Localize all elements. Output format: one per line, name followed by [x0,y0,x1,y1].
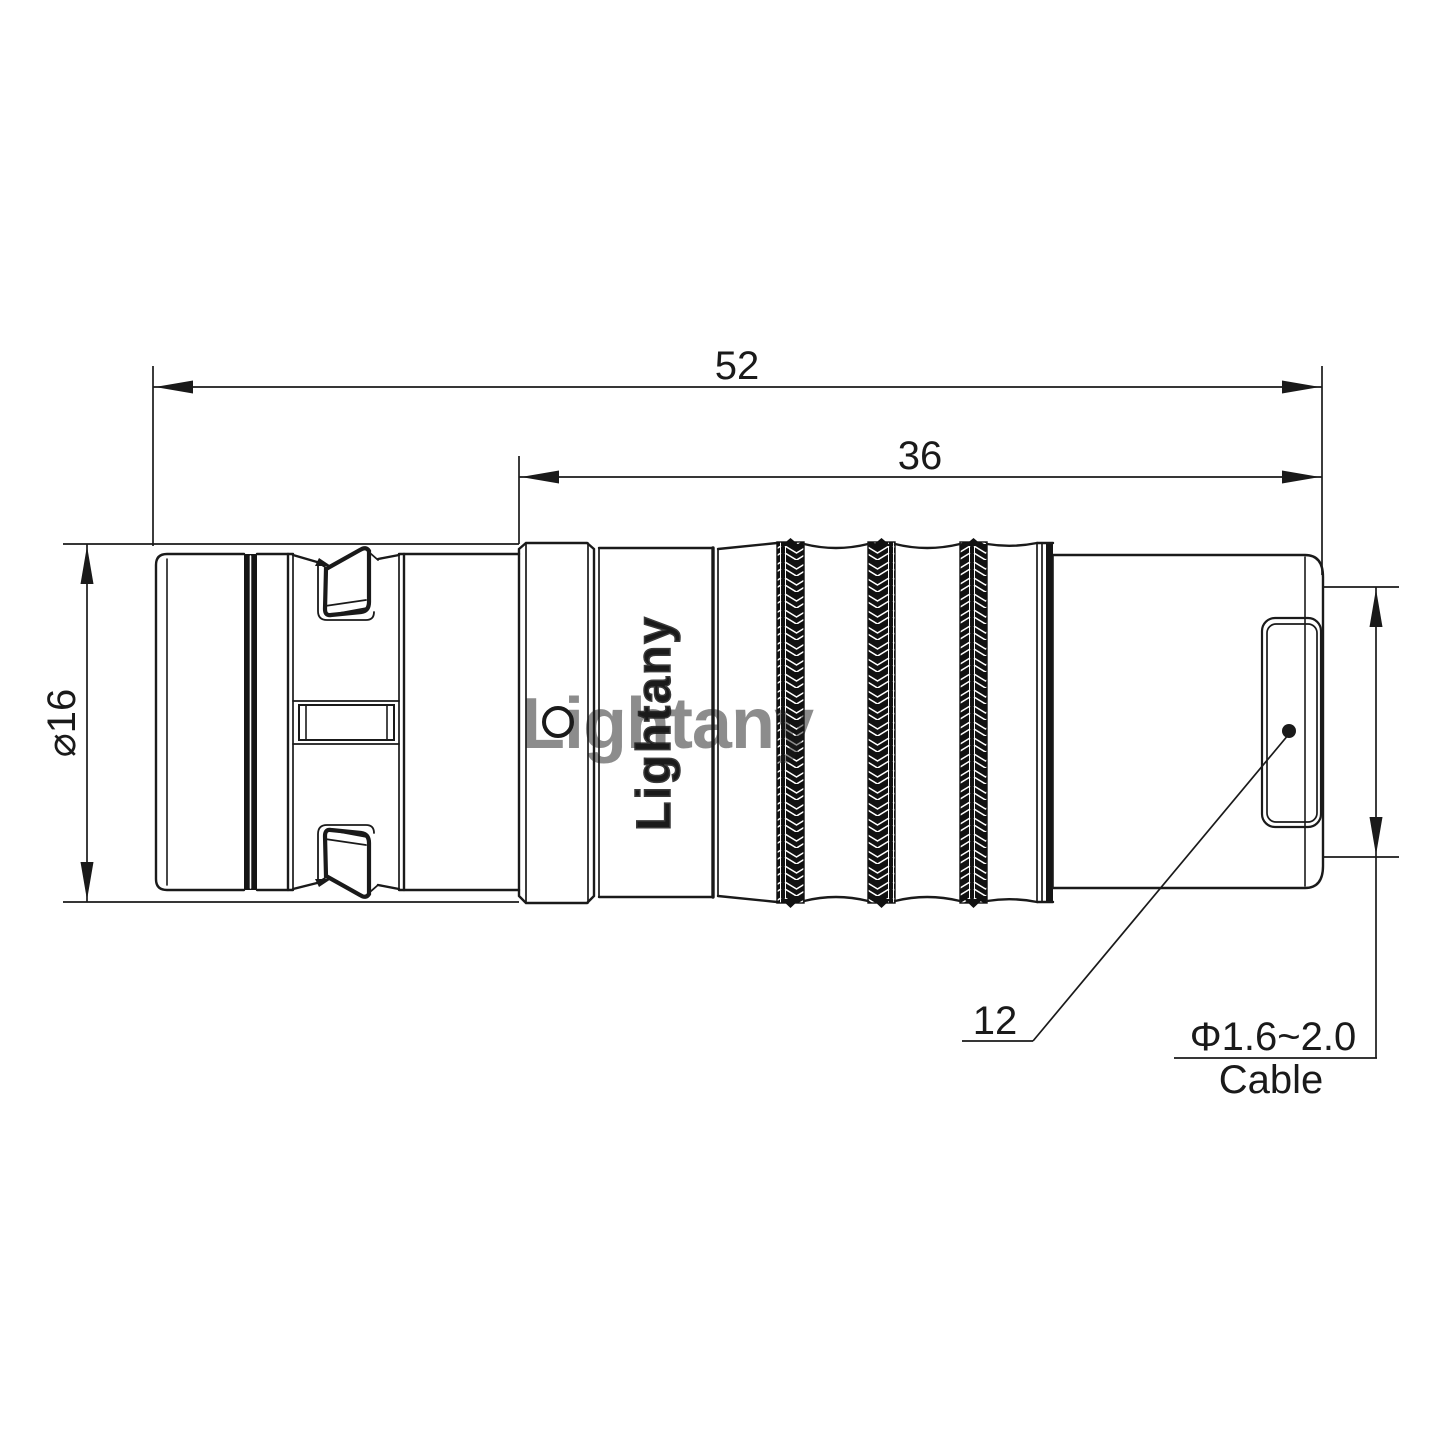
dim-label-overall-length: 52 [715,344,760,388]
dim-label-nose-diameter: 12 [973,999,1018,1043]
dim-label-body-diameter: ⌀16 [40,689,84,758]
top-latch-clip [315,548,378,615]
dimension-body-diameter [63,544,519,902]
dimension-nose-diameter [1323,587,1399,1058]
latch-sleeve [288,554,404,890]
separator-band [244,554,257,890]
knurled-bands [777,538,1037,908]
leader-dot [1282,724,1296,738]
cable-bushing [1262,618,1321,827]
front-cap [156,554,244,890]
technical-drawing-canvas: 52 36 ⌀16 12 Φ1.6~2.0 Cable Lightany Lig… [0,0,1440,1440]
grip-rear-flange [1037,543,1053,902]
cable-range-label: Φ1.6~2.0 [1190,1015,1356,1059]
dim-label-rear-length: 36 [898,434,943,478]
rear-barrel [1053,555,1323,888]
brand-watermark: Lightany [521,684,814,764]
knurled-band [868,542,895,903]
knurled-band [960,542,987,903]
drawing-page: 52 36 ⌀16 12 Φ1.6~2.0 Cable Lightany Lig… [0,0,1440,1440]
cable-word-label: Cable [1219,1058,1324,1102]
latch-crossbar [299,705,394,740]
bottom-latch-clip [315,830,378,897]
